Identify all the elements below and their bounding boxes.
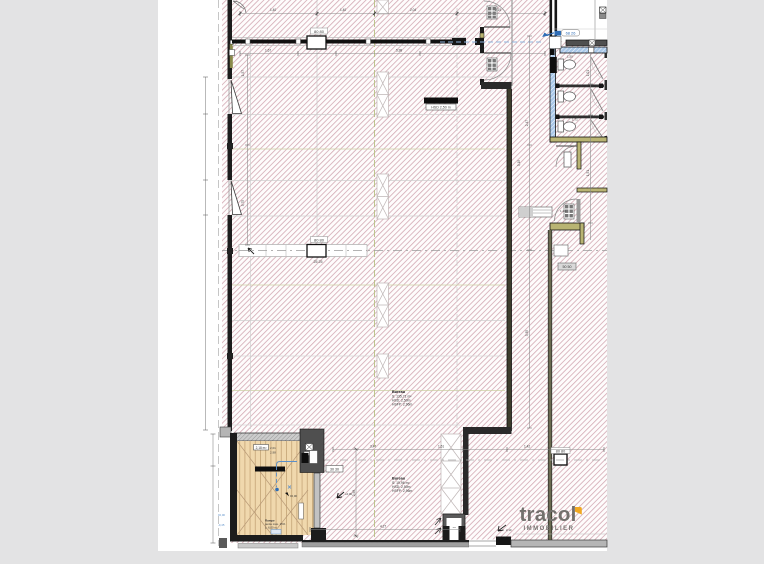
svg-text:Bureau: Bureau	[392, 390, 406, 394]
svg-text:5,75: 5,75	[241, 200, 245, 206]
svg-text:1,29: 1,29	[560, 209, 566, 213]
svg-text:2,10: 2,10	[506, 528, 512, 532]
svg-text:1,51: 1,51	[586, 170, 590, 176]
svg-text:1,40: 1,40	[270, 8, 276, 12]
svg-text:HSFP: 2,96m: HSFP: 2,96m	[392, 489, 413, 493]
svg-text:1,67: 1,67	[265, 49, 271, 53]
svg-text:2,47: 2,47	[525, 120, 529, 126]
svg-text:2,01: 2,01	[270, 446, 276, 450]
svg-text:1,57: 1,57	[241, 70, 245, 76]
svg-text:1,40: 1,40	[340, 8, 346, 12]
svg-text:1,51: 1,51	[438, 445, 444, 449]
svg-text:2,04: 2,04	[410, 8, 416, 12]
svg-text:2,15: 2,15	[495, 8, 501, 12]
svg-text:Bureau: Bureau	[392, 477, 406, 481]
svg-text:L: 6,00 m: L: 6,00 m	[265, 525, 277, 529]
svg-text:3,19: 3,19	[517, 160, 521, 166]
svg-text:80 80: 80 80	[556, 449, 566, 453]
svg-text:HSD 2,50 m: HSD 2,50 m	[431, 106, 451, 110]
svg-text:IMMOBILIER: IMMOBILIER	[524, 526, 575, 532]
svg-text:2,98: 2,98	[352, 490, 356, 496]
svg-text:3,35: 3,35	[525, 330, 529, 336]
svg-text:1,01: 1,01	[586, 70, 590, 76]
svg-text:3,47: 3,47	[370, 445, 376, 449]
svg-text:50 50: 50 50	[563, 265, 572, 269]
svg-text:25 25: 25 25	[314, 260, 323, 264]
svg-text:2,98: 2,98	[270, 451, 276, 455]
svg-text:4,27: 4,27	[380, 525, 386, 529]
svg-text:68 26: 68 26	[566, 30, 576, 35]
svg-text:tracol: tracol	[519, 503, 576, 526]
svg-text:±0,00: ±0,00	[218, 513, 225, 517]
svg-text:-0,45: -0,45	[218, 523, 225, 527]
svg-text:1,50: 1,50	[567, 55, 573, 59]
svg-text:1,42: 1,42	[524, 445, 530, 449]
svg-text:30 30: 30 30	[330, 467, 339, 471]
svg-text:HSFP: 2,96m: HSFP: 2,96m	[392, 403, 413, 407]
svg-text:80 80: 80 80	[314, 237, 325, 242]
svg-text:1,71: 1,71	[572, 118, 578, 122]
svg-text:2,18 m²: 2,18 m²	[256, 446, 267, 450]
svg-text:5,98: 5,98	[396, 49, 402, 53]
svg-text:±0,00: ±0,00	[290, 494, 297, 498]
svg-text:80 80: 80 80	[314, 29, 325, 34]
